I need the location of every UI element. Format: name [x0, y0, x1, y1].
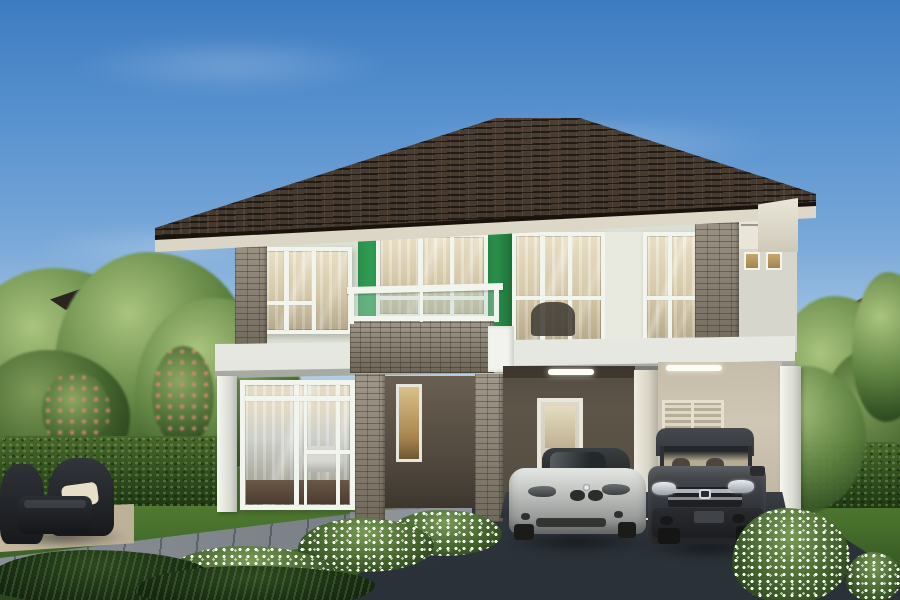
bedroom-window-left [253, 247, 352, 334]
rendered-scene [0, 0, 900, 600]
window-mullion [304, 385, 307, 505]
brand-roundel [583, 484, 590, 491]
front-bumper-intake [536, 518, 606, 527]
window-transom [245, 396, 350, 401]
balcony-railing-bottom [354, 316, 494, 321]
window-mullion [312, 251, 316, 330]
fog-light [521, 513, 530, 520]
window-wall-pier [605, 232, 643, 346]
entry-sidelight-window [396, 384, 422, 462]
balcony-parapet-stone [350, 319, 494, 373]
cloud [70, 35, 390, 95]
headlight [652, 482, 676, 495]
clerestory-window [766, 252, 782, 270]
window-mullion [647, 296, 696, 300]
license-plate [694, 511, 724, 523]
kidney-grille [588, 490, 603, 501]
stone-pillar-ground-b [475, 374, 503, 522]
table-top-glint [24, 500, 86, 508]
carport-ceiling-light [548, 369, 594, 375]
wheel [658, 528, 680, 544]
stone-pillar-upper-right [695, 204, 739, 350]
window-mullion [668, 236, 672, 342]
fog-light [732, 514, 745, 523]
side-mirror [750, 466, 765, 476]
carport-ceiling-light [666, 365, 722, 371]
brand-logo [699, 489, 711, 499]
window-rail [304, 450, 350, 454]
stone-pillar-upper-left [235, 230, 267, 350]
headlight [528, 486, 556, 497]
headlight [728, 480, 754, 493]
roof-corner-fascia [758, 198, 798, 252]
kidney-grille [570, 490, 585, 501]
ground-column-left [217, 376, 237, 512]
window-mullion [284, 251, 289, 330]
window-mullion [516, 296, 601, 300]
pink-blossom-tree [152, 346, 214, 446]
fog-light [614, 511, 623, 518]
window-mullion [336, 385, 340, 505]
headlight [602, 484, 630, 495]
window-mullion [294, 385, 299, 505]
interior-armchair-silhouette [531, 302, 575, 336]
flower-bush [846, 552, 900, 600]
door-glass-pane [545, 406, 575, 448]
wheel [618, 522, 636, 538]
balcony-railing-post [494, 286, 499, 322]
clerestory-window [744, 252, 760, 270]
fog-light [660, 516, 673, 525]
stone-pillar-ground-a [355, 374, 385, 520]
wheel [514, 524, 534, 540]
